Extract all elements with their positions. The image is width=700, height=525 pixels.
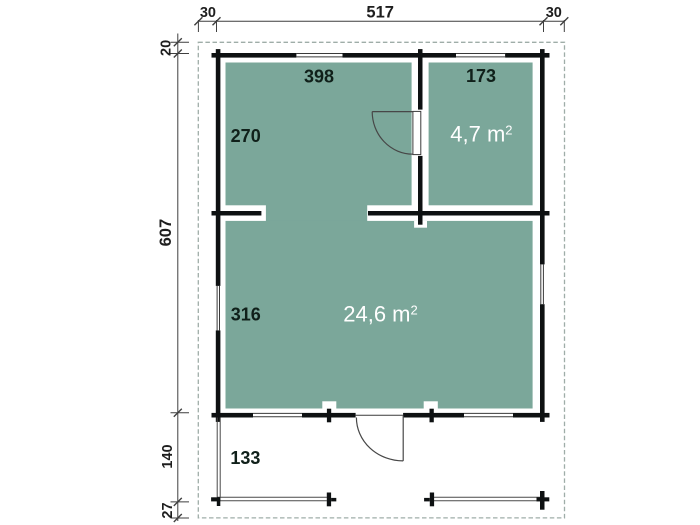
svg-text:133: 133 bbox=[230, 448, 260, 468]
svg-text:270: 270 bbox=[231, 126, 261, 146]
svg-text:20: 20 bbox=[159, 40, 175, 56]
svg-text:517: 517 bbox=[366, 4, 394, 22]
svg-text:607: 607 bbox=[157, 219, 175, 247]
svg-text:173: 173 bbox=[466, 66, 496, 86]
svg-text:398: 398 bbox=[304, 66, 334, 86]
svg-text:24,6 m2: 24,6 m2 bbox=[343, 301, 418, 326]
svg-text:30: 30 bbox=[546, 5, 562, 21]
svg-text:30: 30 bbox=[200, 5, 216, 21]
svg-text:140: 140 bbox=[160, 444, 176, 468]
svg-text:27: 27 bbox=[160, 502, 176, 518]
svg-text:316: 316 bbox=[231, 305, 261, 325]
svg-text:4,7 m2: 4,7 m2 bbox=[450, 122, 512, 147]
